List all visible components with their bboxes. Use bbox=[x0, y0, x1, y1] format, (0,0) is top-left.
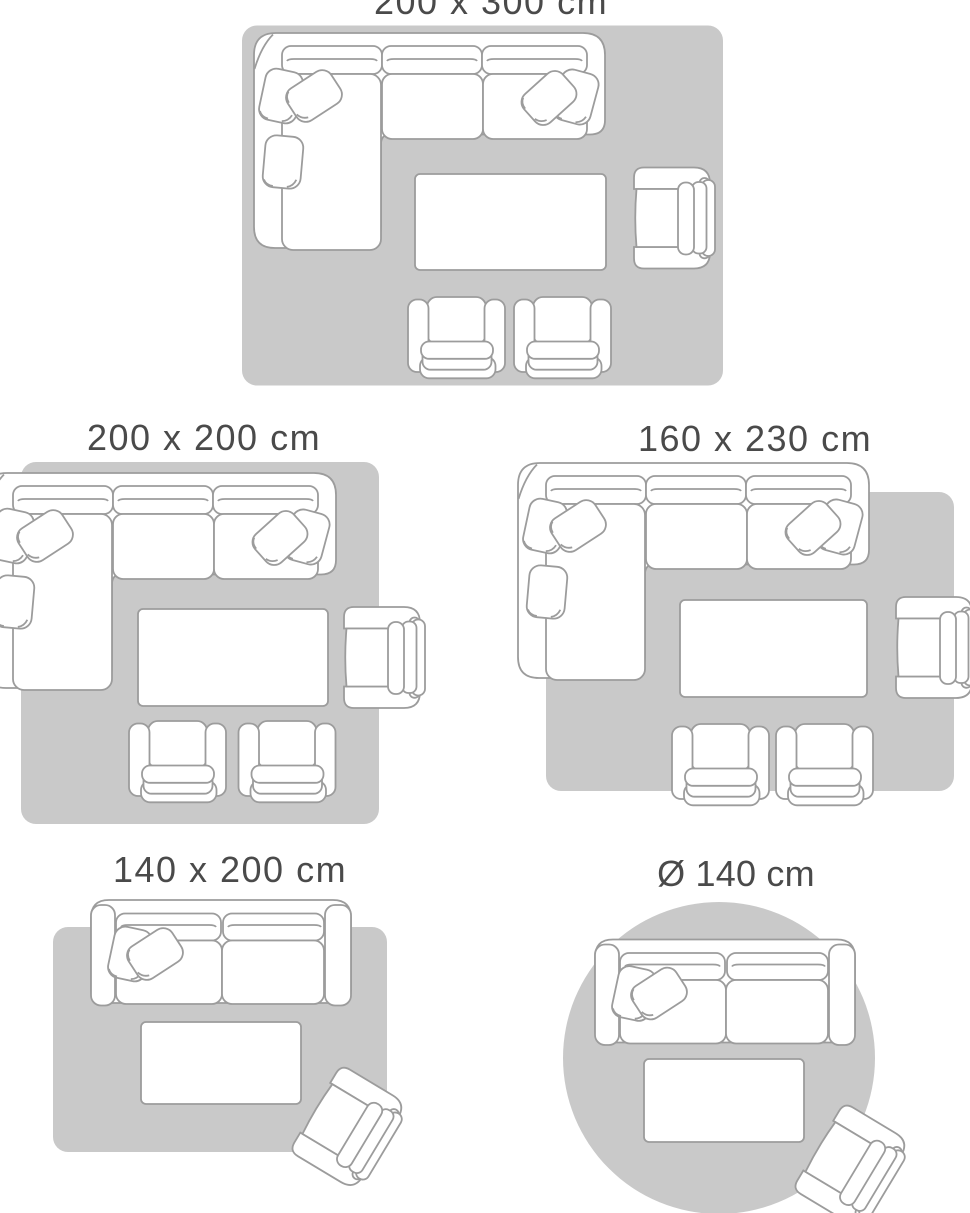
svg-text:160 x 230 cm: 160 x 230 cm bbox=[638, 418, 872, 459]
svg-text:140 x 200 cm: 140 x 200 cm bbox=[113, 849, 347, 890]
svg-text:200 x 200 cm: 200 x 200 cm bbox=[87, 417, 321, 458]
svg-text:Ø 140 cm: Ø 140 cm bbox=[657, 853, 815, 894]
svg-text:200 x 300 cm: 200 x 300 cm bbox=[374, 0, 608, 22]
